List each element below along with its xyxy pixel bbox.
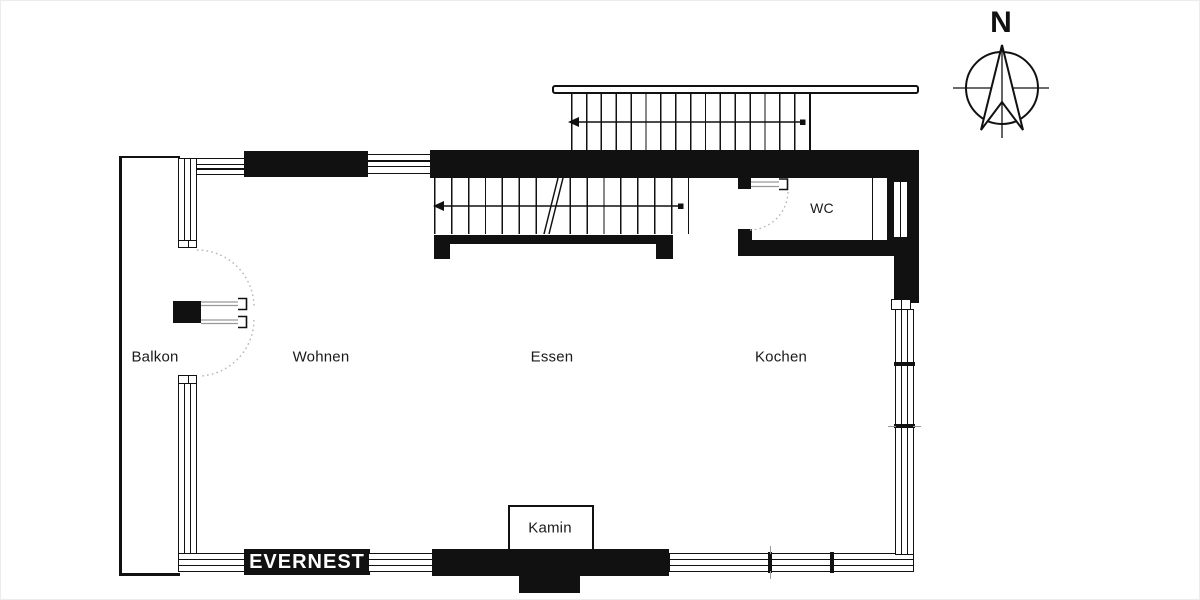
room-label-balkon: Balkon	[131, 349, 178, 366]
balcony-door-swing-arc-lower	[201, 320, 254, 376]
wc-door	[750, 179, 788, 230]
window-bottom-center-left	[368, 553, 434, 572]
stair-wall-bar	[434, 235, 673, 244]
exterior-stair-landing-edge	[552, 85, 919, 94]
interior-stair-treads	[434, 178, 689, 234]
wc-wall-stub-top	[738, 178, 751, 189]
fireplace-label: Kamin	[528, 520, 572, 537]
room-label-wc: WC	[810, 200, 834, 216]
window-mullion	[768, 552, 772, 573]
window-left-upper	[178, 158, 197, 247]
window-left-lower	[178, 383, 197, 572]
chimney-block	[519, 576, 580, 593]
room-label-wohnen: Wohnen	[293, 349, 350, 366]
window-mullion	[830, 552, 834, 573]
wall-top-main	[430, 150, 919, 178]
evernest-logo-text: EVERNEST	[249, 551, 365, 574]
balcony-outline	[119, 156, 180, 576]
stair-wall-block-right	[656, 235, 673, 259]
stair-wall-block-left	[434, 235, 450, 259]
window-wc-right-wall	[893, 181, 908, 238]
wc-door-swing-arc	[750, 192, 788, 230]
compass-needle	[981, 45, 1023, 130]
window-bottom-right	[669, 553, 914, 572]
exterior-stair-treads	[571, 94, 811, 151]
compass-north-label: N	[990, 6, 1012, 40]
wc-wall-bottom	[738, 240, 894, 256]
window-mullion	[894, 424, 915, 428]
balcony-french-doors	[197, 250, 254, 376]
room-label-kochen: Kochen	[755, 349, 807, 366]
window-right-kitchen	[895, 309, 914, 555]
balcony-door-pier	[173, 301, 201, 323]
balcony-door-swing-arc-upper	[197, 250, 254, 307]
evernest-logo: EVERNEST	[244, 549, 370, 575]
window-top-left-corner	[196, 158, 246, 175]
window-bottom-left	[178, 553, 246, 572]
floor-plan-canvas: EVERNEST	[0, 0, 1200, 600]
wall-bottom-fireplace	[432, 549, 669, 576]
compass-rose	[953, 45, 1049, 138]
room-label-essen: Essen	[531, 349, 574, 366]
window-left-upper-endcap	[178, 240, 197, 248]
window-mullion	[894, 362, 915, 366]
window-top-b	[367, 154, 431, 174]
wc-duct-niche	[872, 178, 888, 240]
wall-top-segment-a	[244, 151, 368, 177]
